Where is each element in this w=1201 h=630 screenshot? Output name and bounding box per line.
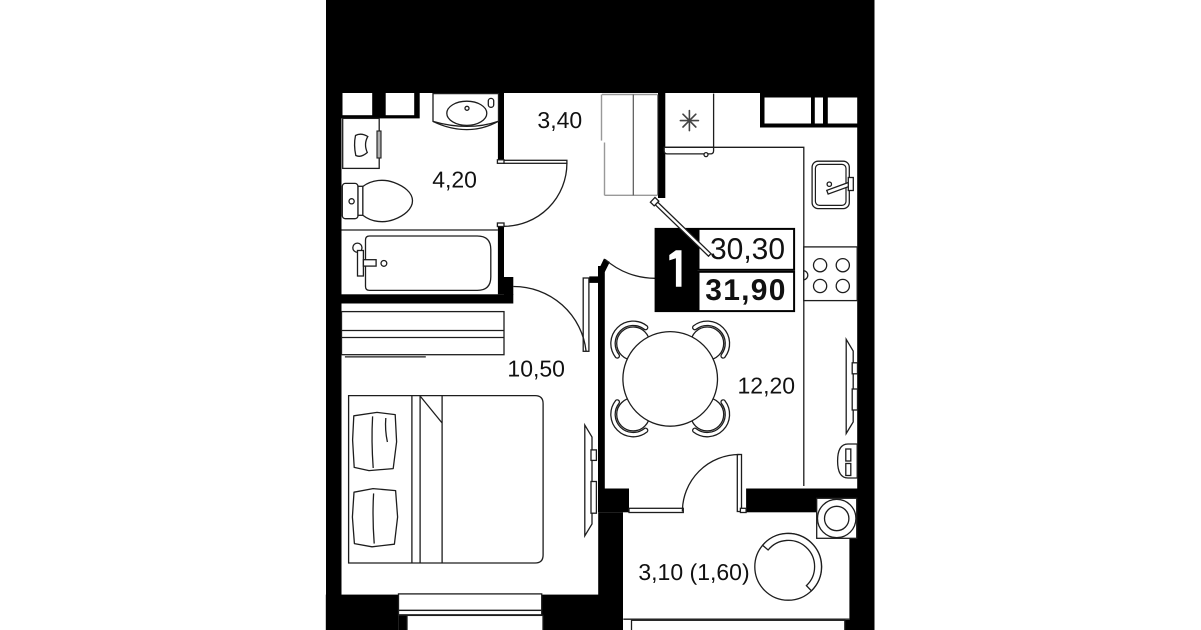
svg-text:10,50: 10,50 (507, 356, 565, 382)
svg-text:4,20: 4,20 (432, 166, 477, 192)
svg-text:30,30: 30,30 (710, 233, 785, 266)
svg-text:3,40: 3,40 (537, 107, 582, 133)
svg-text:31,90: 31,90 (705, 274, 787, 307)
svg-text:12,20: 12,20 (738, 373, 796, 399)
svg-text:3,10 (1,60): 3,10 (1,60) (638, 559, 749, 585)
